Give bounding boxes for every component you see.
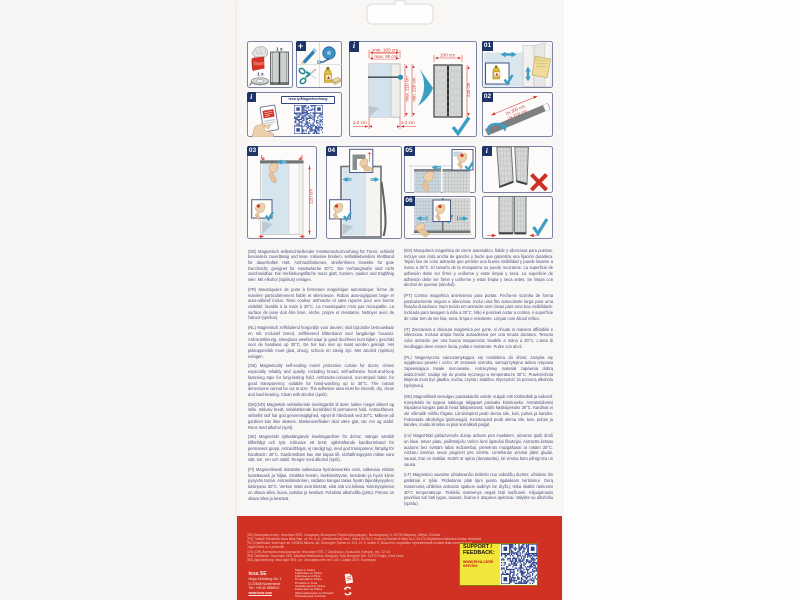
svg-text:≥ 2 cm: ≥ 2 cm (353, 120, 367, 125)
svg-text:≥ 2 cm: ≥ 2 cm (401, 120, 415, 125)
svg-text:220 cm: 220 cm (466, 82, 471, 97)
svg-text:max. 95 cm: max. 95 cm (375, 54, 398, 59)
svg-text:min. 220 cm: min. 220 cm (412, 77, 417, 101)
svg-text:1 x: 1 x (257, 72, 264, 78)
svg-text:min. 100 cm: min. 100 cm (373, 48, 398, 53)
svg-text:100 cm: 100 cm (440, 53, 455, 58)
svg-text:220 cm: 220 cm (309, 188, 314, 203)
svg-text:max. 210 cm: max. 210 cm (405, 76, 410, 101)
